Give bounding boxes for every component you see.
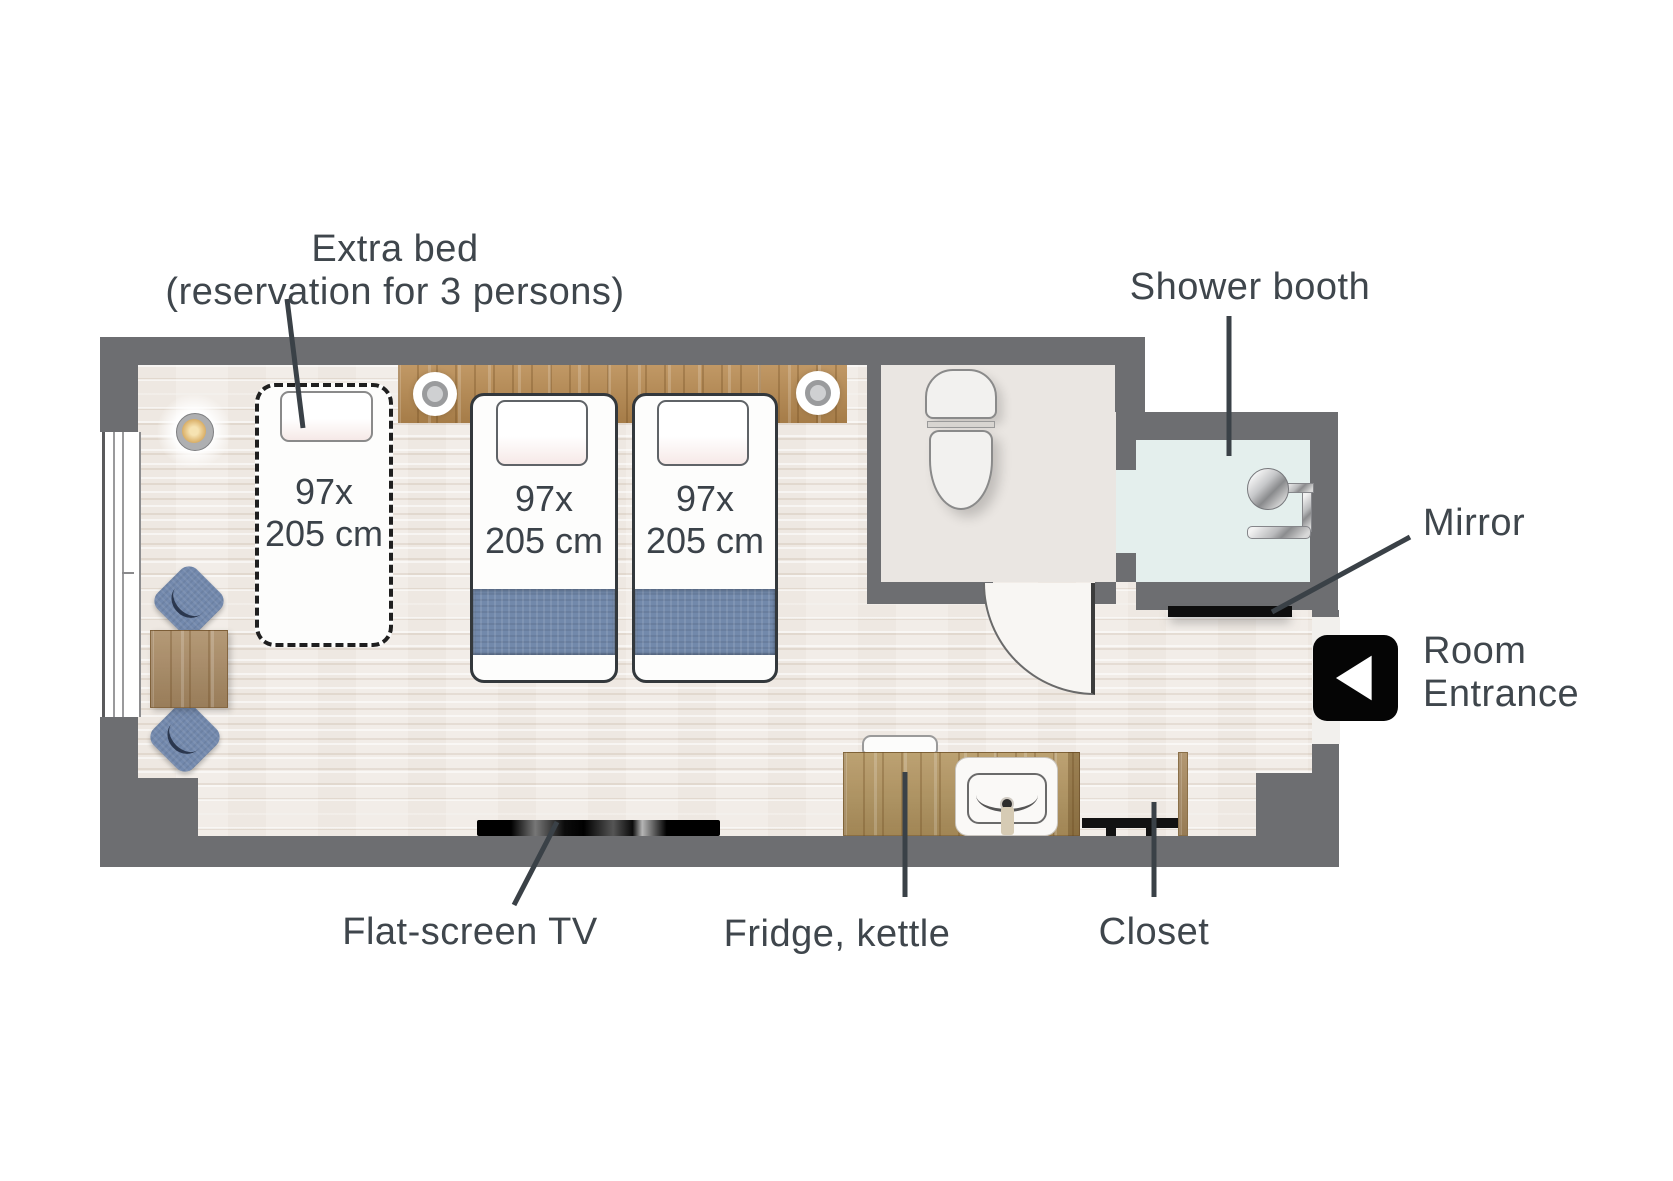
wall-bottom — [100, 836, 1339, 867]
shower-head-icon — [1247, 468, 1289, 510]
wall-bathroom-right-lower — [1116, 553, 1136, 582]
extra-bed-pillow — [280, 391, 373, 442]
wall-booth-right — [1310, 412, 1338, 610]
extra-bed-label: Extra bed (reservation for 3 persons) — [95, 228, 695, 314]
bed-size-line2: 205 cm — [259, 513, 389, 555]
twin-bed-left-size: 97x 205 cm — [473, 478, 615, 562]
twin-bed-left-blanket — [473, 589, 615, 655]
room-entrance-label-line1: Room — [1423, 630, 1579, 673]
floor-plan-canvas: 97x 205 cm 97x 205 cm 97x 205 cm — [0, 0, 1673, 1181]
mirror — [1168, 606, 1292, 617]
headboard-panel — [398, 365, 847, 423]
window-latch — [122, 572, 134, 574]
closet-rail — [1082, 818, 1178, 828]
window-frame-line — [113, 432, 115, 717]
room-entrance-label: Room Entrance — [1423, 630, 1579, 716]
bed-size-line2: 205 cm — [473, 520, 615, 562]
twin-bed-left: 97x 205 cm — [470, 393, 618, 683]
bathroom-floor — [881, 365, 1116, 582]
closet-rail-support — [1106, 827, 1116, 836]
extra-bed-label-line2: (reservation for 3 persons) — [95, 271, 695, 314]
reading-lamp-left-ring — [422, 381, 448, 407]
reading-lamp-right-ring — [805, 380, 831, 406]
toilet-seat-hinge — [927, 421, 995, 428]
shower-handle — [1247, 526, 1311, 539]
fridge-counter-edge — [1068, 752, 1080, 836]
wall-booth-top — [1136, 412, 1338, 440]
twin-bed-left-pillow — [496, 400, 588, 466]
bed-size-line1: 97x — [473, 478, 615, 520]
shower-booth-floor — [1136, 440, 1310, 582]
chair-crease — [160, 712, 210, 762]
room-entrance-label-line2: Entrance — [1423, 673, 1579, 716]
wall-left-top — [100, 337, 138, 432]
wall-top — [100, 337, 1145, 365]
tv-label: Flat-screen TV — [270, 911, 670, 954]
wall-bathroom-left — [867, 365, 881, 604]
wall-bathroom-right-upper — [1116, 365, 1136, 470]
table — [150, 630, 228, 708]
toilet-tank — [925, 369, 997, 419]
extra-bed: 97x 205 cm — [255, 383, 393, 647]
extra-bed-size: 97x 205 cm — [259, 471, 389, 555]
flat-screen-tv — [477, 820, 720, 836]
bed-size-line1: 97x — [259, 471, 389, 513]
shower-booth-label: Shower booth — [1050, 266, 1450, 309]
bed-size-line1: 97x — [635, 478, 775, 520]
window — [102, 432, 141, 717]
wall-left-bottom — [100, 717, 138, 836]
wall-bathroom-bottom-left — [881, 582, 993, 604]
twin-bed-right-size: 97x 205 cm — [635, 478, 775, 562]
twin-bed-right-pillow — [657, 400, 749, 466]
entrance-arrow-icon — [1313, 635, 1398, 721]
closet-rail-support — [1146, 827, 1156, 836]
sink — [955, 757, 1058, 836]
extra-bed-label-line1: Extra bed — [95, 228, 695, 271]
closet-side-panel — [1178, 752, 1188, 836]
sink-faucet — [1001, 807, 1014, 835]
bed-size-line2: 205 cm — [635, 520, 775, 562]
shower-booth-doorway-floor — [1116, 470, 1136, 553]
wall-bathroom-bottom-right — [1095, 582, 1116, 604]
mirror-label: Mirror — [1423, 502, 1525, 545]
window-frame-line — [122, 432, 124, 717]
twin-bed-right: 97x 205 cm — [632, 393, 778, 683]
exterior-notch — [1145, 365, 1338, 412]
room-entrance-marker — [1313, 635, 1398, 721]
closet-label: Closet — [954, 911, 1354, 954]
twin-bed-right-blanket — [635, 589, 775, 655]
chair-crease — [164, 576, 214, 626]
floor-lamp-bulb — [182, 419, 206, 443]
